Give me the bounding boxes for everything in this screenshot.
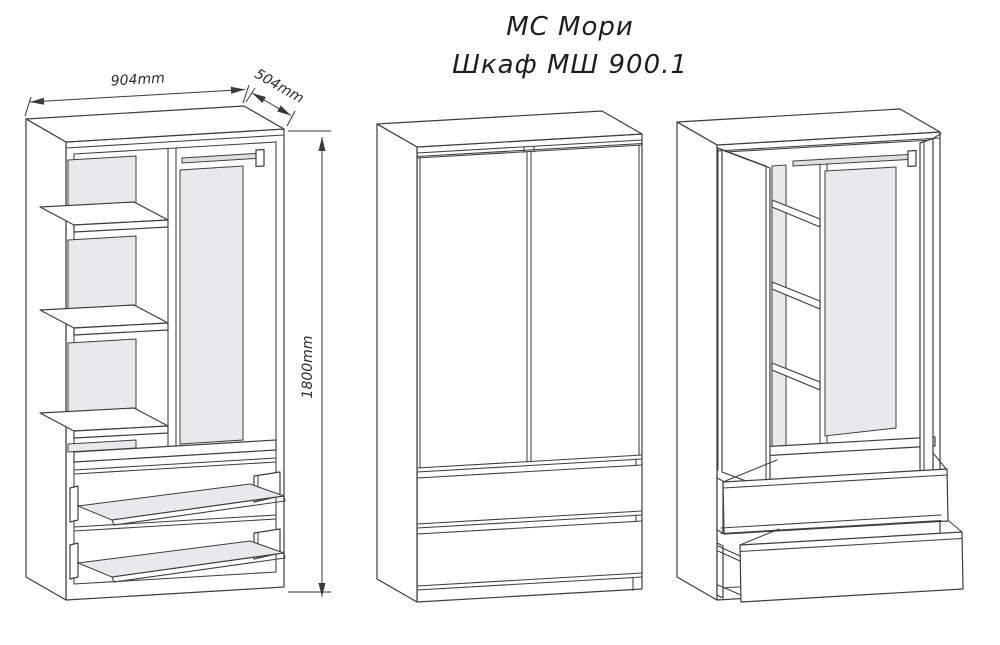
rod-bracket <box>908 151 916 167</box>
depth-dimension-label: 504mm <box>252 66 307 107</box>
back-panel-right <box>180 166 243 444</box>
width-dimension-label: 904mm <box>110 70 165 89</box>
arrowhead <box>319 137 326 151</box>
door-panel <box>920 139 933 510</box>
door-panel <box>722 150 770 490</box>
back-panel-right <box>825 167 896 436</box>
view-open-interior <box>26 106 285 600</box>
left-side-panel <box>677 122 717 600</box>
back-panels <box>68 156 136 452</box>
drawer-runner <box>70 486 78 522</box>
arrowhead <box>319 583 326 597</box>
technical-drawing-page: МС Мори Шкаф МШ 900.1 <box>0 0 1000 645</box>
drawer-runner <box>70 543 78 579</box>
arrowhead <box>277 106 291 116</box>
rod-bracket <box>256 150 264 167</box>
width-dimension-line <box>30 90 245 103</box>
left-side-panel <box>26 119 66 600</box>
height-dimension-label: 1800mm <box>300 336 316 399</box>
drawer-front <box>740 532 963 602</box>
arrowhead <box>252 93 266 103</box>
view-doors-open <box>677 109 963 602</box>
open-door-left <box>718 148 770 490</box>
arrowhead <box>30 98 44 105</box>
wardrobe-views-svg: 904mm 504mm 1800mm <box>0 0 1000 645</box>
left-side-panel <box>377 124 417 602</box>
arrowhead <box>231 87 245 94</box>
view-closed-front <box>377 111 642 602</box>
drawer-runner <box>717 478 723 533</box>
